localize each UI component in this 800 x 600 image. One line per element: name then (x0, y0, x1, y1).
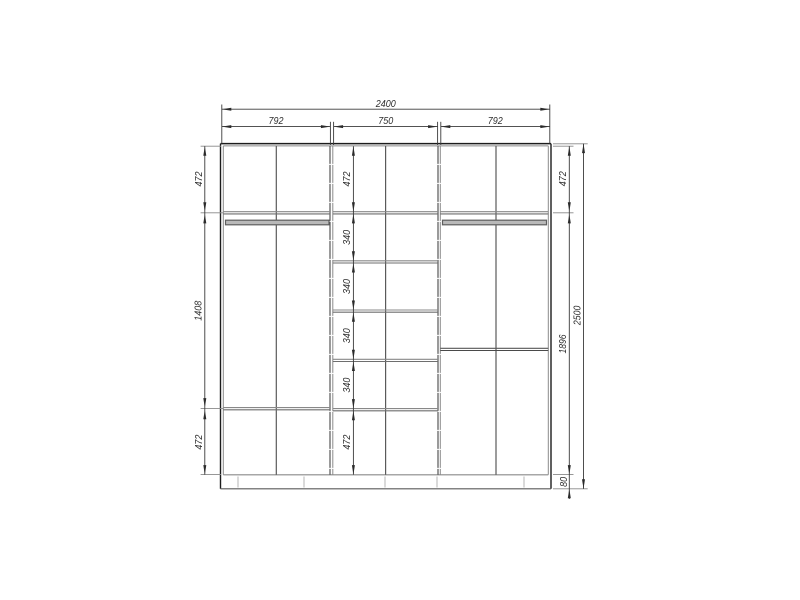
svg-text:340: 340 (342, 328, 353, 343)
svg-text:340: 340 (342, 279, 353, 294)
svg-text:2400: 2400 (375, 99, 396, 110)
svg-text:792: 792 (269, 116, 284, 127)
svg-text:472: 472 (342, 171, 353, 186)
svg-text:472: 472 (342, 434, 353, 449)
svg-text:340: 340 (342, 230, 353, 245)
svg-text:792: 792 (488, 116, 503, 127)
svg-text:80: 80 (559, 477, 570, 487)
svg-text:750: 750 (378, 116, 393, 127)
svg-text:472: 472 (194, 434, 205, 449)
svg-text:1408: 1408 (193, 300, 204, 320)
svg-text:472: 472 (194, 171, 205, 186)
svg-text:340: 340 (342, 377, 353, 392)
svg-text:2500: 2500 (572, 305, 583, 326)
svg-text:472: 472 (558, 171, 569, 186)
svg-text:1896: 1896 (558, 334, 569, 353)
